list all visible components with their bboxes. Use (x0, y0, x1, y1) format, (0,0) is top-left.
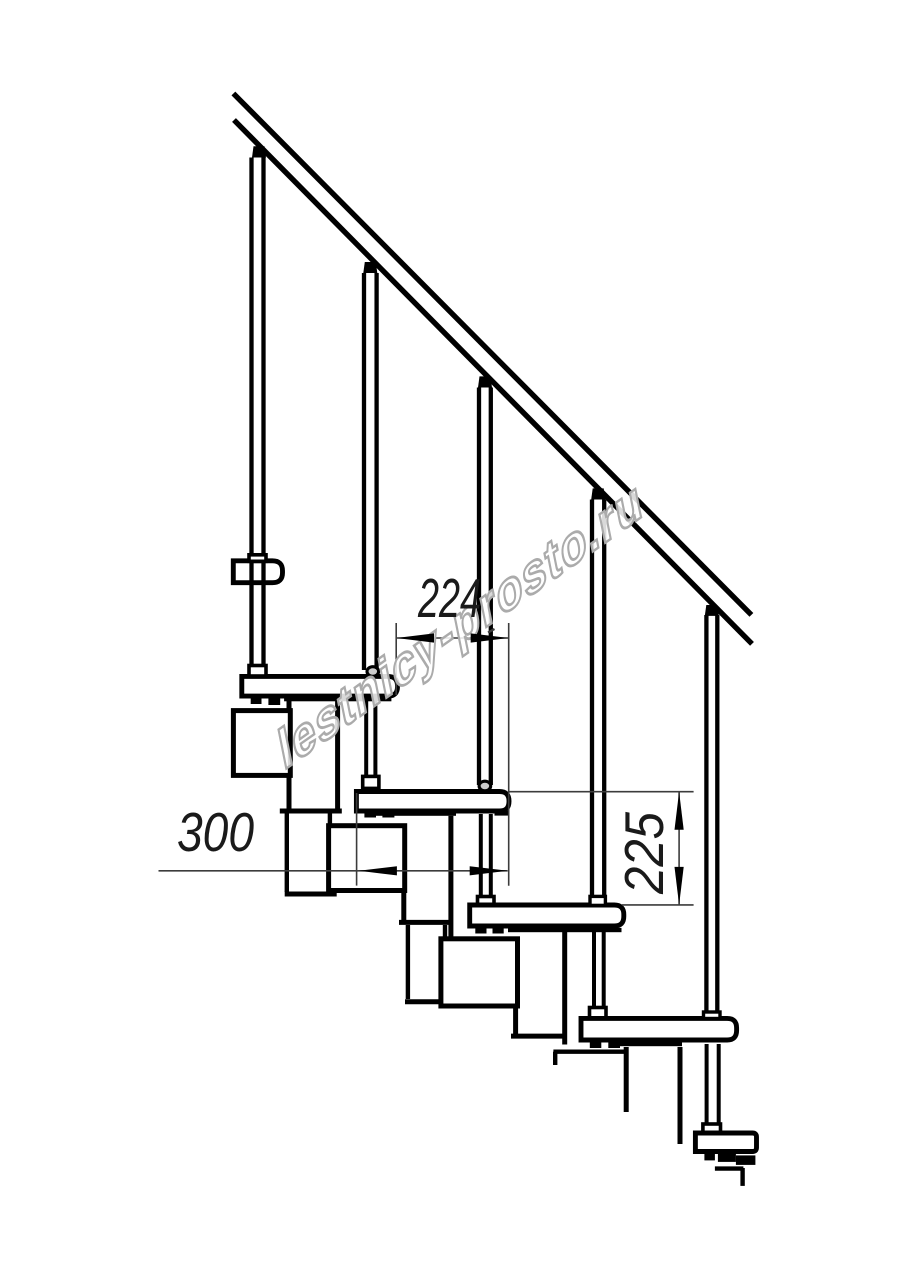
svg-text:300: 300 (177, 801, 254, 863)
svg-text:224: 224 (417, 567, 481, 629)
svg-text:225: 225 (613, 812, 675, 895)
